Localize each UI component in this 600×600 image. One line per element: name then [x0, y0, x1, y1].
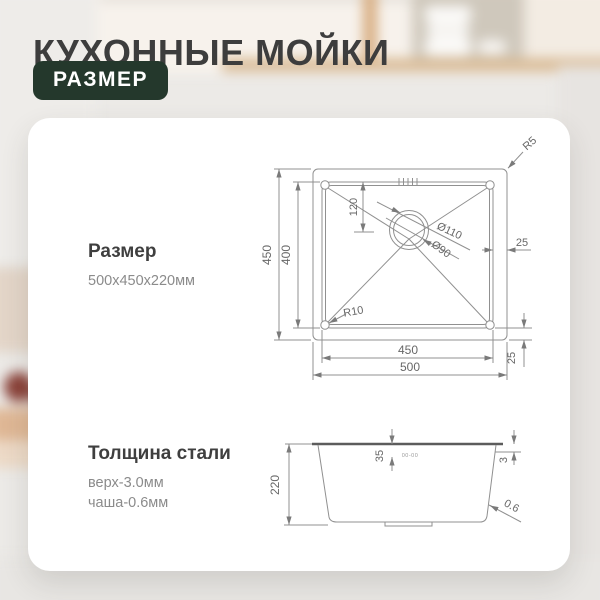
dim-edge-gap-bottom-label: 25 [506, 352, 518, 364]
dim-drain-offset: 120 [348, 182, 374, 232]
corner-radius-marker [321, 321, 329, 329]
bg-bowl [424, 6, 472, 22]
dim-inner-width: 450 [322, 330, 493, 363]
dim-inner-corner-radius: R10 [329, 304, 364, 323]
dim-wall-thickness-label: 0.6 [502, 497, 521, 515]
dim-drain-offset-label: 120 [348, 198, 360, 216]
dim-drain-diameters: Ø110 Ø90 [377, 202, 470, 261]
dim-outer-height-label: 450 [260, 245, 274, 265]
size-badge: РАЗМЕР [33, 61, 168, 100]
corner-radius-marker [321, 181, 329, 189]
dim-inner-height: 400 [279, 182, 320, 328]
bg-bowl [478, 40, 506, 54]
corner-radius-marker [486, 181, 494, 189]
dim-height: 220 [268, 444, 328, 525]
bg-bowl [426, 22, 470, 38]
drain-inner-circle [394, 215, 425, 246]
bg-bowl [424, 38, 472, 56]
spec-card: Размер 500х450х220мм Толщина стали верх-… [28, 118, 570, 571]
corner-radius-marker [486, 321, 494, 329]
dim-outer-width-label: 500 [400, 360, 420, 374]
dim-wall-thickness: 0.6 [489, 497, 521, 522]
stamp-mark: 00-00 [402, 453, 419, 459]
dim-inner-width-label: 450 [398, 343, 418, 357]
product-infographic: КУХОННЫЕ МОЙКИ РАЗМЕР Размер 500х450х220… [0, 0, 600, 600]
dim-outer-corner-radius: R5 [508, 135, 539, 169]
drain-section [385, 522, 432, 526]
dim-drain-inner-label: Ø90 [429, 239, 453, 261]
top-view-drawing: 120 Ø110 Ø90 25 [260, 135, 539, 380]
side-view-drawing: 220 35 00-00 3 [268, 429, 521, 526]
dim-edge-gap-right-label: 25 [516, 237, 528, 249]
technical-drawing: 120 Ø110 Ø90 25 [28, 118, 570, 571]
dim-rim-depth: 35 [374, 429, 392, 471]
sink-outer-rim [313, 169, 507, 340]
dim-inner-corner-radius-label: R10 [342, 304, 364, 319]
dim-inner-height-label: 400 [279, 245, 293, 265]
dim-rim-depth-label: 35 [374, 450, 386, 462]
dim-rim-thickness: 3 [495, 430, 521, 465]
dim-height-label: 220 [268, 475, 282, 495]
dim-outer-corner-radius-label: R5 [521, 135, 539, 153]
dim-rim-thickness-label: 3 [498, 457, 510, 463]
